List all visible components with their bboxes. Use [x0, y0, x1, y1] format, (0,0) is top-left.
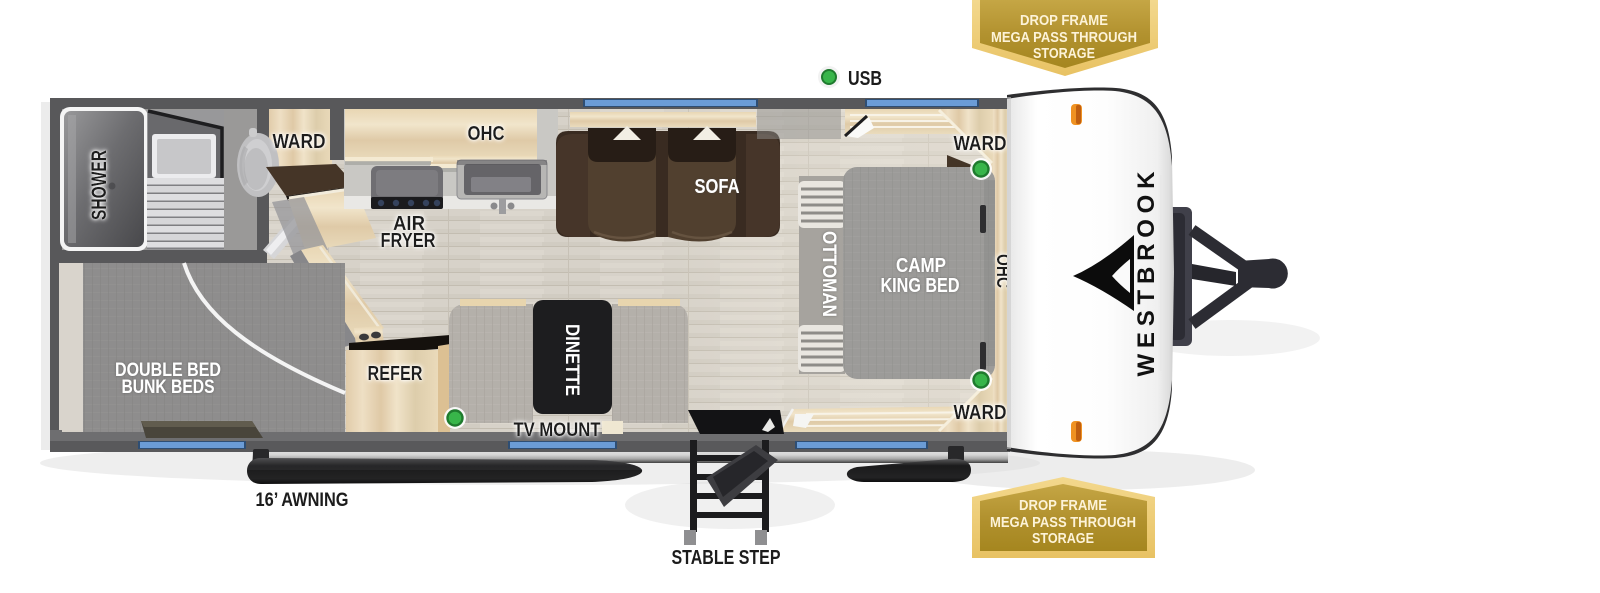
- svg-text:WESTBROOK: WESTBROOK: [1133, 171, 1160, 377]
- svg-text:CAMP: CAMP: [896, 255, 946, 277]
- svg-text:OTTOMAN: OTTOMAN: [818, 231, 839, 317]
- svg-text:MEGA PASS THROUGH: MEGA PASS THROUGH: [991, 30, 1137, 46]
- svg-text:SOFA: SOFA: [695, 176, 740, 198]
- svg-text:WARD: WARD: [954, 402, 1007, 424]
- svg-text:DINETTE: DINETTE: [561, 324, 582, 396]
- svg-text:USB: USB: [848, 68, 882, 90]
- svg-text:REFER: REFER: [368, 363, 423, 385]
- svg-text:WARD: WARD: [954, 133, 1007, 155]
- svg-text:OHC: OHC: [468, 123, 505, 145]
- svg-text:WARD: WARD: [273, 131, 326, 153]
- svg-text:TV MOUNT: TV MOUNT: [514, 420, 601, 441]
- svg-text:BUNK BEDS: BUNK BEDS: [122, 377, 215, 398]
- svg-text:FRYER: FRYER: [381, 230, 436, 252]
- svg-text:STORAGE: STORAGE: [1033, 46, 1095, 62]
- svg-text:DROP FRAME: DROP FRAME: [1019, 498, 1107, 514]
- svg-text:STABLE STEP: STABLE STEP: [672, 547, 781, 569]
- svg-text:KING BED: KING BED: [881, 275, 960, 297]
- svg-text:SHOWER: SHOWER: [88, 150, 111, 220]
- svg-text:STORAGE: STORAGE: [1032, 531, 1094, 547]
- svg-text:MEGA PASS THROUGH: MEGA PASS THROUGH: [990, 515, 1136, 531]
- svg-text:16’ AWNING: 16’ AWNING: [256, 490, 349, 511]
- svg-text:DROP FRAME: DROP FRAME: [1020, 13, 1108, 29]
